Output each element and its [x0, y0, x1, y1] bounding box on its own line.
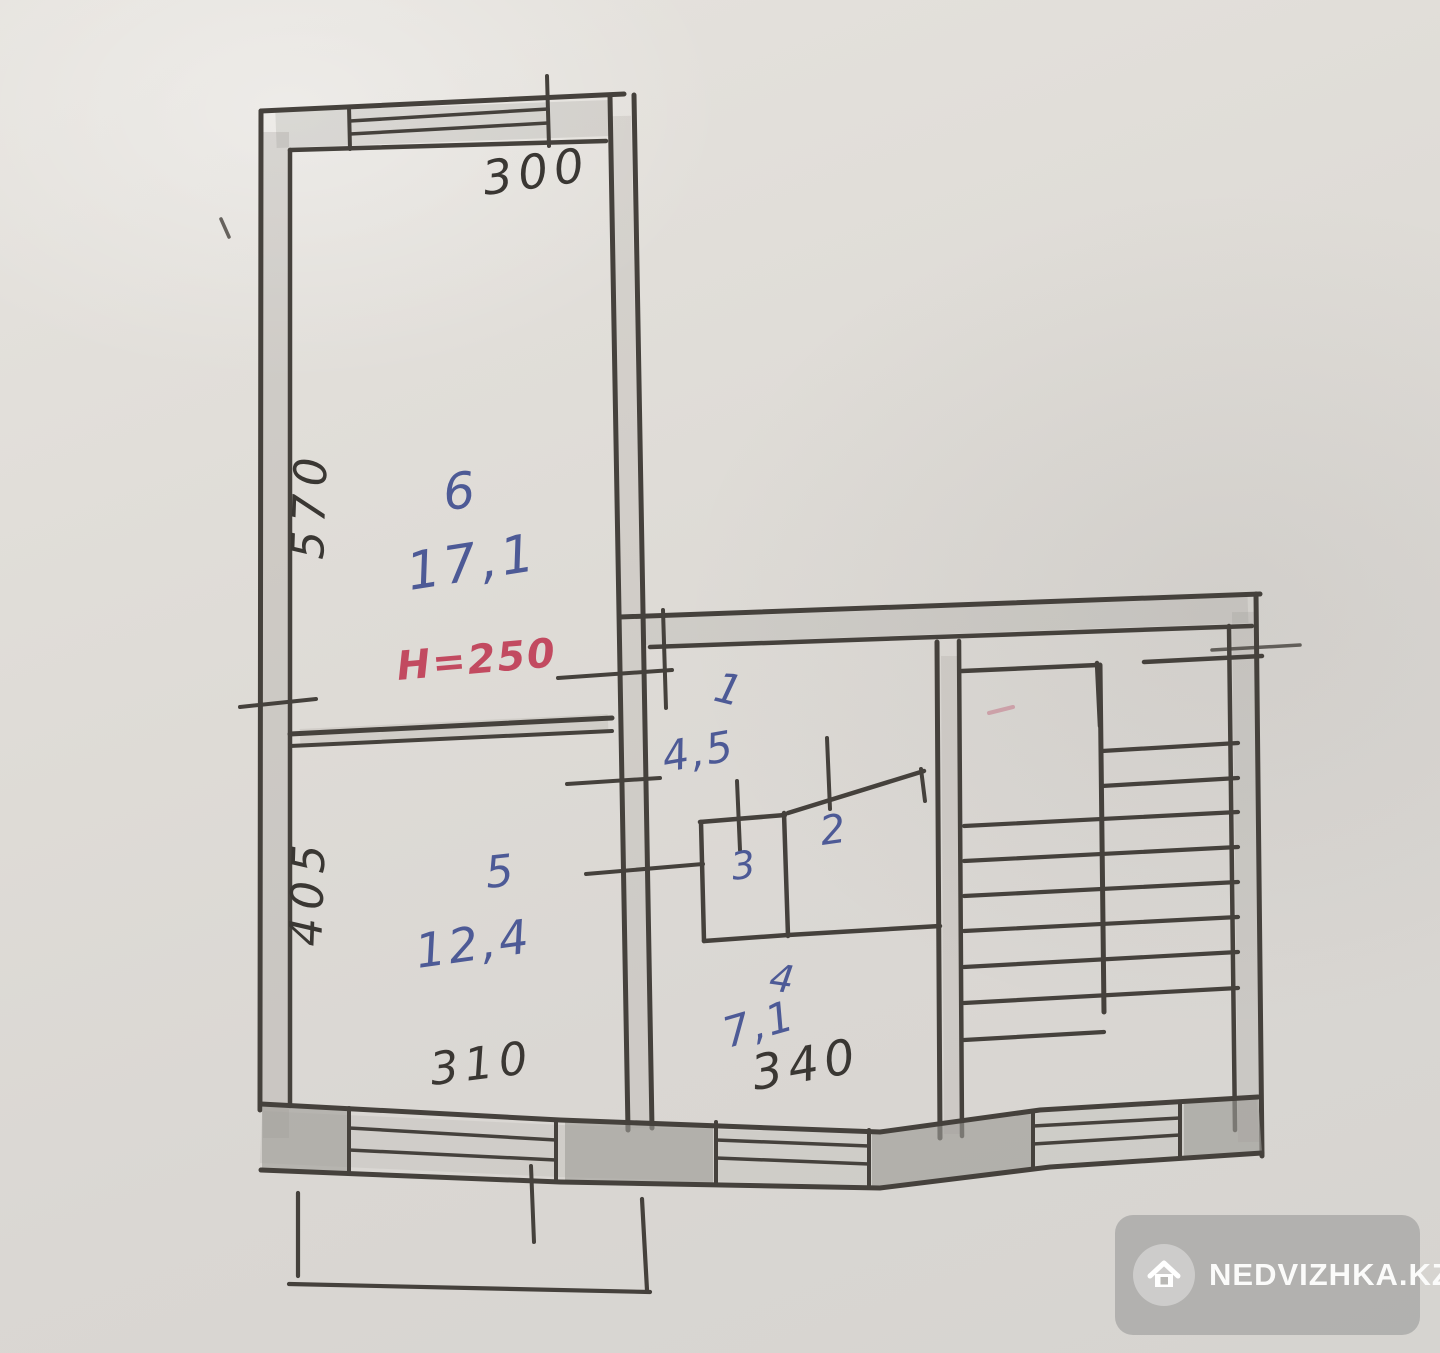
- dim-left-upper: 570: [281, 449, 338, 561]
- bath-number: 2: [817, 806, 849, 855]
- dim-left-lower: 405: [279, 836, 336, 948]
- height-note: Н=250: [395, 630, 559, 690]
- watermark-circle: [1133, 1244, 1195, 1306]
- floor-plan-photo: 300 570 405 310 340 Н=250 6 17,1 5 12,4 …: [0, 0, 1440, 1353]
- hall-number: 1: [710, 662, 748, 716]
- house-icon: [1144, 1255, 1184, 1295]
- room6-number: 6: [440, 461, 478, 522]
- room6-area: 17,1: [403, 523, 543, 603]
- wc-number: 3: [728, 842, 758, 889]
- room5-area: 12,4: [412, 909, 535, 980]
- right-wing-walls: [620, 594, 1262, 1156]
- floor-plan-drawing: 300 570 405 310 340 Н=250 6 17,1 5 12,4 …: [0, 0, 1440, 1353]
- site-watermark: NEDVIZHKA.KZ: [1115, 1215, 1420, 1335]
- room5-number: 5: [483, 845, 516, 899]
- hall-area: 4,5: [658, 721, 738, 782]
- dim-top-width: 300: [479, 137, 593, 206]
- dim-bottom-left: 310: [427, 1031, 537, 1096]
- watermark-brand: NEDVIZHKA.KZ: [1209, 1257, 1440, 1293]
